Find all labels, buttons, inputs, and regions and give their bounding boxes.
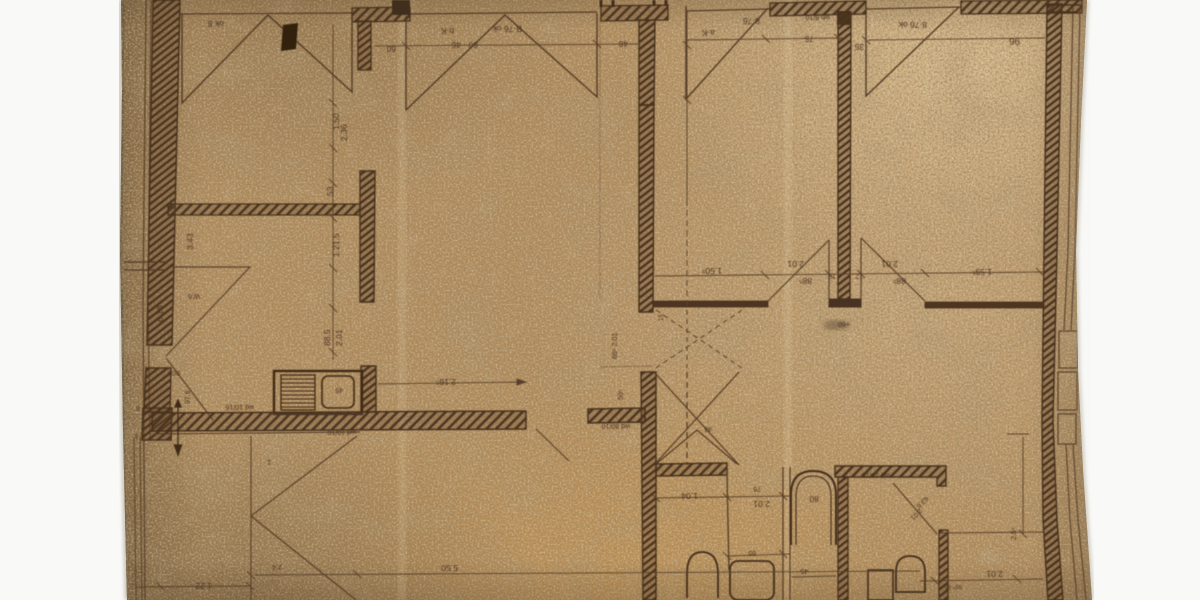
svg-text:80⁵ 85: 80⁵ 85 bbox=[944, 583, 962, 590]
svg-text:88⁵: 88⁵ bbox=[893, 276, 906, 286]
svg-text:60: 60 bbox=[386, 44, 396, 54]
svg-text:6.18: 6.18 bbox=[155, 305, 165, 322]
svg-text:B·76 ok: B·76 ok bbox=[492, 24, 522, 34]
svg-text:2.01: 2.01 bbox=[334, 329, 344, 346]
svg-text:b·K: b·K bbox=[440, 26, 454, 36]
svg-text:3: 3 bbox=[135, 432, 139, 439]
svg-text:88.5: 88.5 bbox=[322, 329, 332, 346]
svg-text:1.59⁵: 1.59⁵ bbox=[972, 267, 992, 277]
svg-text:wd 10/10: wd 10/10 bbox=[327, 428, 357, 435]
svg-text:8·76: 8·76 bbox=[743, 16, 760, 26]
svg-text:15: 15 bbox=[659, 314, 665, 321]
svg-text:97.6: 97.6 bbox=[185, 390, 192, 404]
svg-text:1.21.5: 1.21.5 bbox=[331, 233, 341, 257]
svg-text:wd 16/10: wd 16/10 bbox=[861, 471, 891, 478]
svg-text:76: 76 bbox=[753, 485, 761, 492]
svg-text:2.4: 2.4 bbox=[272, 563, 282, 570]
svg-text:8: 8 bbox=[136, 404, 140, 411]
svg-text:wb 8/10: wb 8/10 bbox=[805, 13, 831, 20]
svg-text:50⁵: 50⁵ bbox=[618, 389, 625, 400]
svg-text:88⁵ 2.01: 88⁵ 2.01 bbox=[612, 333, 619, 359]
svg-text:45: 45 bbox=[335, 386, 343, 393]
svg-text:8·76 ok: 8·76 ok bbox=[898, 20, 927, 30]
svg-text:80: 80 bbox=[809, 494, 819, 504]
svg-text:1.04: 1.04 bbox=[681, 491, 698, 501]
svg-text:88⁵: 88⁵ bbox=[799, 276, 812, 286]
svg-text:45: 45 bbox=[800, 567, 808, 574]
svg-text:2.01: 2.01 bbox=[753, 499, 770, 509]
svg-text:60 · 46: 60 · 46 bbox=[451, 40, 478, 50]
svg-text:96: 96 bbox=[1008, 35, 1020, 46]
svg-text:2.01: 2.01 bbox=[881, 259, 898, 269]
svg-text:75: 75 bbox=[804, 34, 814, 44]
svg-text:wd 80/10: wd 80/10 bbox=[601, 422, 631, 429]
svg-text:46: 46 bbox=[704, 425, 712, 432]
svg-text:12: 12 bbox=[855, 272, 863, 279]
svg-text:1.22: 1.22 bbox=[195, 581, 212, 591]
svg-text:2.5⁴: 2.5⁴ bbox=[1011, 527, 1018, 540]
svg-text:a·K: a·K bbox=[701, 28, 715, 38]
svg-text:46: 46 bbox=[618, 39, 628, 49]
svg-text:1: 1 bbox=[267, 458, 271, 465]
svg-text:3.43: 3.43 bbox=[185, 233, 195, 250]
svg-text:BG8: BG8 bbox=[167, 369, 180, 375]
svg-text:ok 8: ok 8 bbox=[208, 19, 224, 29]
svg-text:5.50: 5.50 bbox=[441, 563, 458, 573]
svg-text:2.16⁵: 2.16⁵ bbox=[436, 377, 456, 387]
svg-text:2.36: 2.36 bbox=[339, 124, 349, 141]
svg-text:53: 53 bbox=[325, 186, 335, 196]
svg-text:85: 85 bbox=[748, 549, 756, 556]
svg-text:12: 12 bbox=[828, 272, 836, 279]
svg-text:1.50⁵: 1.50⁵ bbox=[702, 266, 722, 276]
svg-text:2.01: 2.01 bbox=[787, 259, 804, 269]
svg-text:W.6: W.6 bbox=[188, 292, 200, 299]
svg-text:2.01: 2.01 bbox=[986, 569, 1003, 579]
svg-text:wd 10/16: wd 10/16 bbox=[225, 403, 255, 410]
svg-text:35: 35 bbox=[854, 42, 864, 52]
svg-text:+60: +60 bbox=[838, 320, 850, 327]
